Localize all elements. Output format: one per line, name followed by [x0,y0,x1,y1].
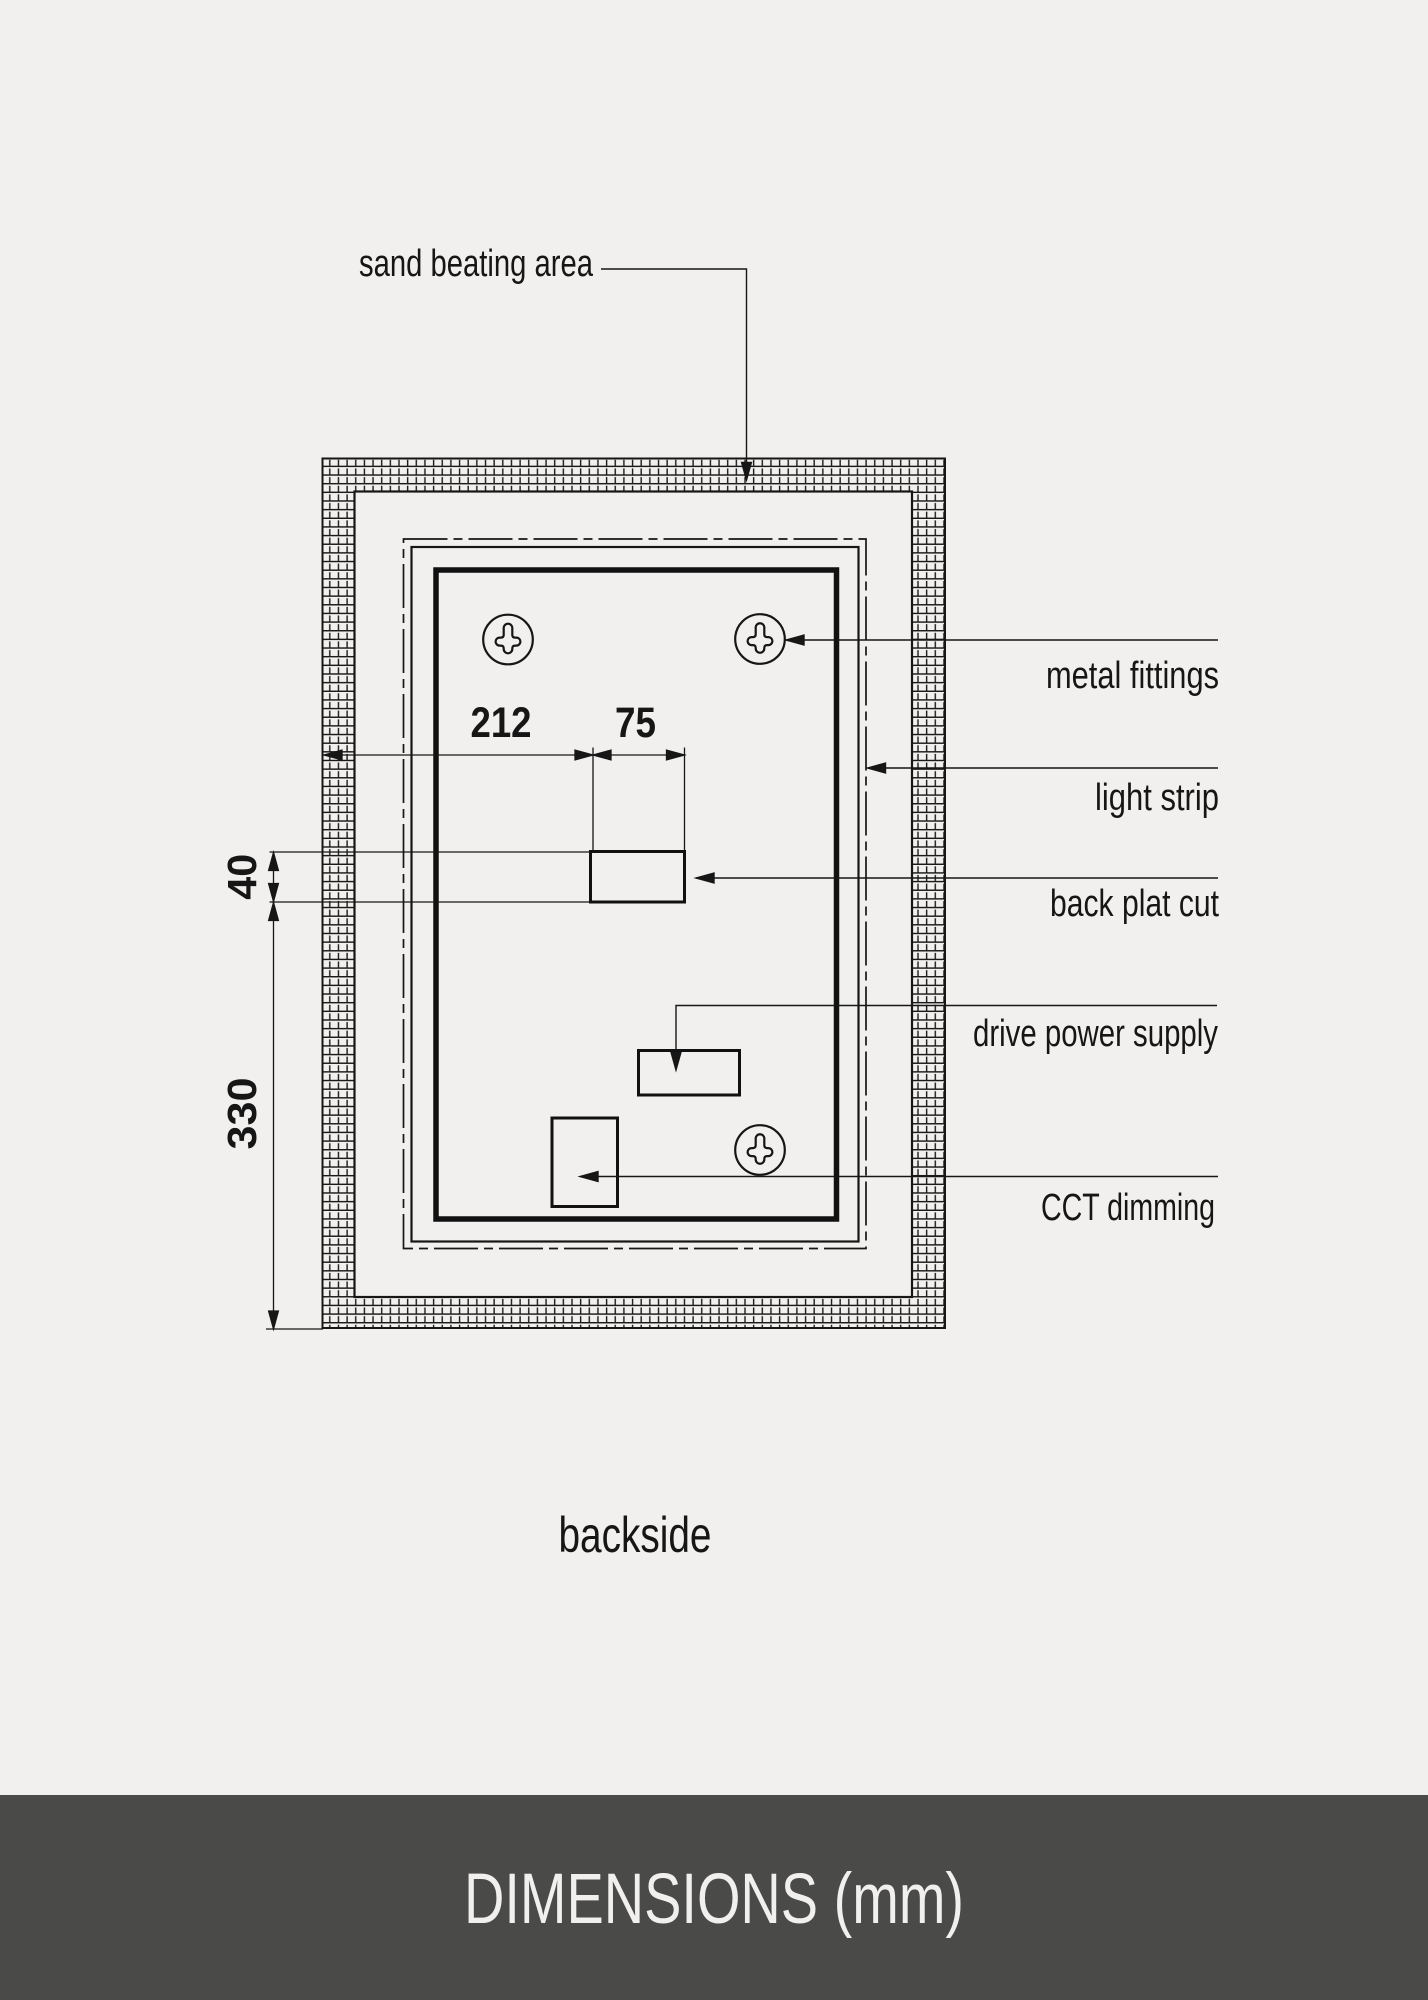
svg-text:212: 212 [471,699,532,747]
svg-text:back plat cut: back plat cut [1050,883,1219,925]
svg-text:light strip: light strip [1095,777,1219,819]
svg-text:330: 330 [219,1078,265,1150]
svg-text:CCT dimming: CCT dimming [1041,1187,1215,1229]
svg-text:DIMENSIONS (mm): DIMENSIONS (mm) [464,1860,964,1939]
svg-text:drive power supply: drive power supply [973,1013,1218,1055]
svg-text:40: 40 [219,854,265,900]
svg-text:sand beating area: sand beating area [359,243,594,285]
svg-text:metal fittings: metal fittings [1046,655,1219,697]
svg-text:75: 75 [615,699,656,747]
svg-text:backside: backside [559,1507,712,1563]
